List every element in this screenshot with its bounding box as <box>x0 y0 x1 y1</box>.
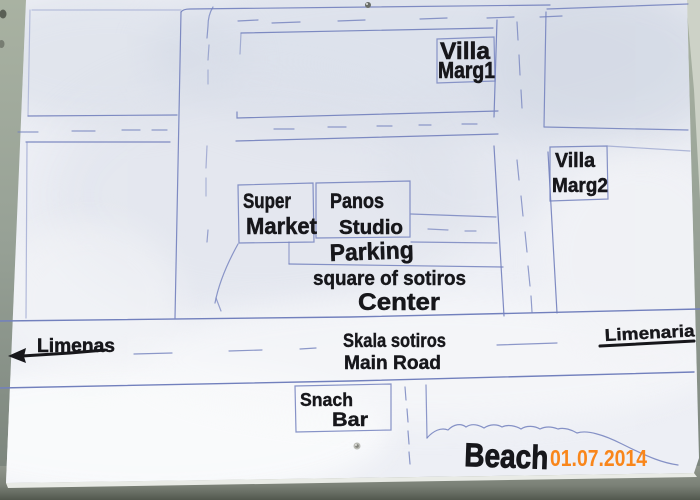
svg-text:Panos: Panos <box>330 190 384 213</box>
svg-text:Marg1: Marg1 <box>438 57 495 83</box>
svg-text:01.07.2014: 01.07.2014 <box>550 445 647 471</box>
svg-text:Marg2: Marg2 <box>552 175 608 197</box>
svg-text:Skala sotiros: Skala sotiros <box>343 331 446 352</box>
svg-text:Market: Market <box>246 213 317 239</box>
svg-text:Bar: Bar <box>332 410 369 431</box>
svg-text:Villa: Villa <box>555 150 596 172</box>
svg-text:Snach: Snach <box>300 390 353 410</box>
svg-text:Beach: Beach <box>464 436 549 476</box>
svg-text:Main Road: Main Road <box>344 353 441 374</box>
svg-text:Studio: Studio <box>339 217 403 239</box>
svg-text:Parking: Parking <box>329 237 414 267</box>
svg-text:Super: Super <box>243 190 291 213</box>
svg-text:Center: Center <box>358 289 440 316</box>
svg-text:square of sotiros: square of sotiros <box>313 268 466 290</box>
